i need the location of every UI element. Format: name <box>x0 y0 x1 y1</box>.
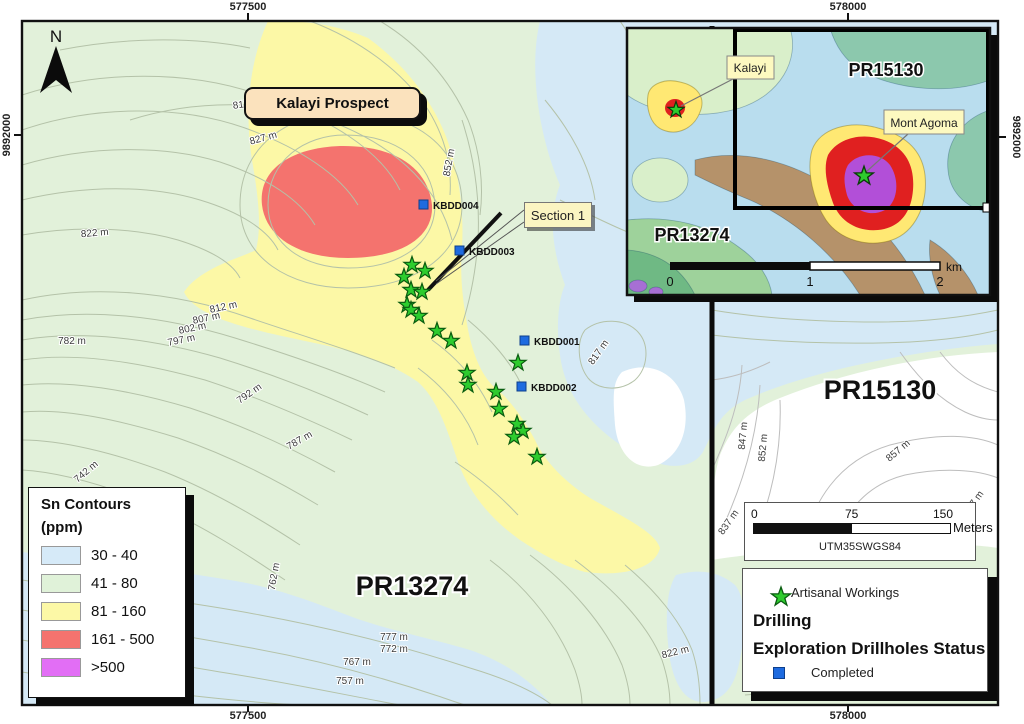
swatch-81-160 <box>41 602 81 621</box>
class-label: 41 - 80 <box>91 575 138 592</box>
completed-square-icon <box>773 667 785 679</box>
artisanal-workings-row: Artisanal Workings <box>769 585 899 600</box>
class-label: 30 - 40 <box>91 547 138 564</box>
coord-left: 9892000 <box>1 114 13 157</box>
sn-legend-title: Sn Contours <box>41 496 185 513</box>
inset-scale-0: 0 <box>666 274 673 289</box>
scale-unit: Meters <box>953 520 993 535</box>
legend-class-row: 161 - 500 <box>41 630 185 648</box>
scalebar-filled-half <box>754 524 852 533</box>
drillhole-label: KBDD001 <box>534 337 580 348</box>
scale-0: 0 <box>751 507 758 521</box>
swatch-gt500 <box>41 658 81 677</box>
class-label: >500 <box>91 659 125 676</box>
drillhole-label: KBDD003 <box>469 247 515 258</box>
coord-bottom-right: 578000 <box>830 710 867 722</box>
coord-right: 9892000 <box>1010 116 1022 159</box>
swatch-161-500 <box>41 630 81 649</box>
completed-label: Completed <box>811 665 874 680</box>
drillhole-label: KBDD004 <box>433 201 479 212</box>
kalayi-prospect-callout: Kalayi Prospect <box>244 87 421 120</box>
licence-label-pr13274: PR13274 <box>356 571 469 601</box>
status-header: Exploration Drillholes Status <box>753 639 985 659</box>
swatch-30-40 <box>41 546 81 565</box>
scale-75: 75 <box>845 507 858 521</box>
kalayi-prospect-label: Kalayi Prospect <box>276 95 389 112</box>
completed-row: Completed <box>773 665 874 680</box>
drilling-header: Drilling <box>753 611 812 631</box>
elevation-label: 757 m <box>336 676 364 687</box>
legend-class-row: >500 <box>41 658 185 676</box>
section-1-callout: Section 1 <box>524 202 592 228</box>
scalebar-bar <box>753 523 951 534</box>
legend-class-row: 30 - 40 <box>41 546 185 564</box>
elevation-label: 767 m <box>343 657 371 668</box>
inset-scale-unit: km <box>946 260 962 274</box>
scalebar-numbers: 0 75 150 <box>745 507 975 521</box>
inset-scale-2: 2 <box>936 274 943 289</box>
drillhole-label: KBDD002 <box>531 383 577 394</box>
class-label: 161 - 500 <box>91 631 154 648</box>
legend-class-row: 81 - 160 <box>41 602 185 620</box>
section-1-label: Section 1 <box>531 208 585 223</box>
swatch-41-80 <box>41 574 81 593</box>
coord-top-right: 578000 <box>830 1 867 13</box>
artisanal-star-icon <box>769 585 793 609</box>
coord-bottom-left: 577500 <box>230 710 267 722</box>
class-label: 81 - 160 <box>91 603 146 620</box>
scale-datum: UTM35SWGS84 <box>745 541 975 553</box>
legend-class-row: 41 - 80 <box>41 574 185 592</box>
elevation-label: 772 m <box>380 644 408 655</box>
inset-mont-agoma-label: Mont Agoma <box>890 116 958 130</box>
inset-map: Kalayi Mont Agoma PR15130 PR13274 0 1 2 … <box>627 28 997 302</box>
elevation-label: 777 m <box>380 632 408 643</box>
map-figure: KBDD004 KBDD003 KBDD001 KBDD002 <box>0 0 1024 724</box>
inset-pr15130-label: PR15130 <box>848 60 923 80</box>
inset-pr13274-label: PR13274 <box>654 225 729 245</box>
artisanal-workings-label: Artisanal Workings <box>791 585 899 600</box>
coord-top-left: 577500 <box>230 1 267 13</box>
scale-150: 150 <box>933 507 953 521</box>
north-arrow-label: N <box>50 27 62 46</box>
elevation-label: 782 m <box>58 336 86 347</box>
sn-contours-legend: Sn Contours (ppm) 30 - 40 41 - 80 81 - 1… <box>28 487 186 698</box>
licence-label-pr15130: PR15130 <box>824 375 937 405</box>
drilling-legend: Artisanal Workings Drilling Exploration … <box>742 568 988 692</box>
inset-kalayi-label: Kalayi <box>734 61 767 75</box>
scalebar-box: 0 75 150 Meters UTM35SWGS84 <box>744 502 976 561</box>
sn-legend-units: (ppm) <box>41 519 185 536</box>
inset-scale-1: 1 <box>806 274 813 289</box>
